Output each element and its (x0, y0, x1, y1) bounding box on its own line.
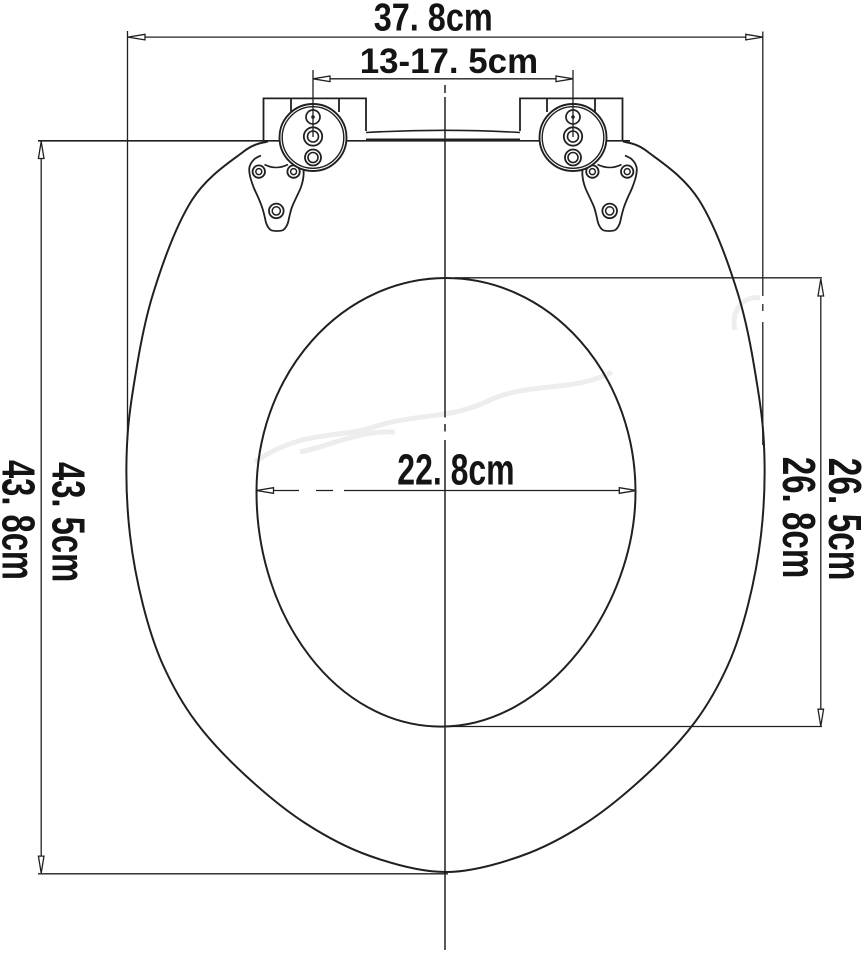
svg-text:37. 8cm: 37. 8cm (374, 0, 493, 40)
svg-text:13-17. 5cm: 13-17. 5cm (360, 42, 538, 81)
svg-text:26. 8cm: 26. 8cm (773, 457, 825, 579)
svg-text:43. 5cm: 43. 5cm (43, 462, 95, 582)
svg-text:43. 8cm: 43. 8cm (0, 460, 44, 580)
svg-text:22. 8cm: 22. 8cm (397, 447, 514, 495)
